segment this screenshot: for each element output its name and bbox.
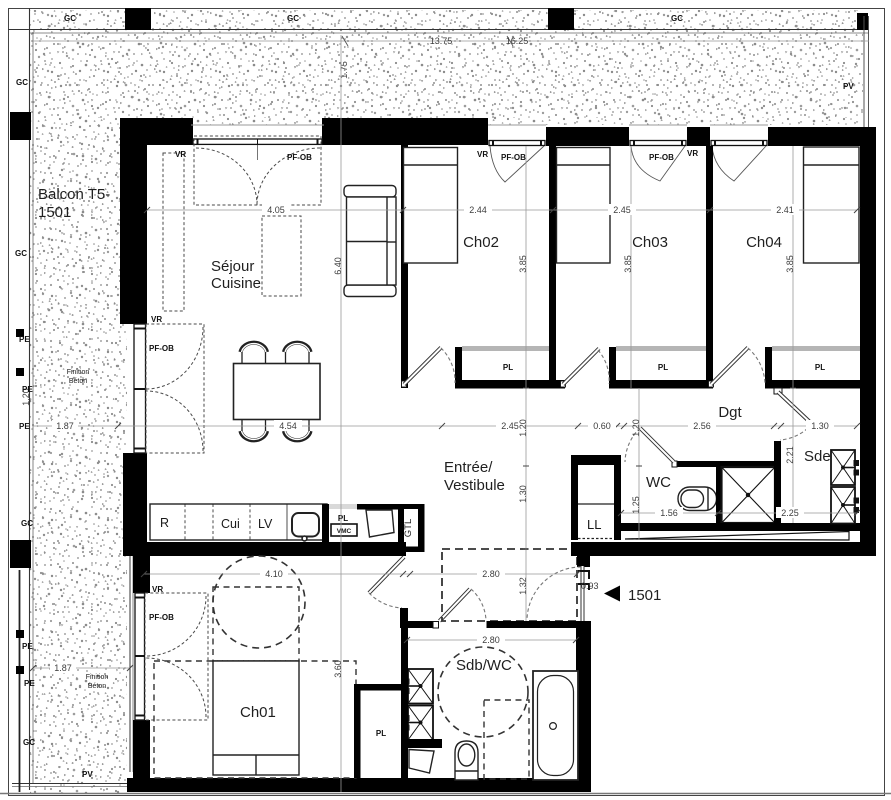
svg-text:Ch03: Ch03 xyxy=(632,234,668,251)
svg-text:Sde: Sde xyxy=(804,448,831,465)
svg-text:VR: VR xyxy=(687,149,698,158)
svg-text:GC: GC xyxy=(16,78,28,87)
svg-text:Finition: Finition xyxy=(86,674,109,681)
svg-text:Cui: Cui xyxy=(221,517,240,531)
svg-text:Vestibule: Vestibule xyxy=(444,477,505,494)
svg-text:2.41: 2.41 xyxy=(776,205,794,215)
svg-text:Entrée/: Entrée/ xyxy=(444,459,493,476)
svg-text:6.40: 6.40 xyxy=(333,257,343,275)
svg-text:Balcon T5-: Balcon T5- xyxy=(38,186,110,203)
svg-text:2.80: 2.80 xyxy=(482,569,500,579)
svg-text:1.87: 1.87 xyxy=(54,663,72,673)
svg-text:16.25: 16.25 xyxy=(506,36,529,46)
svg-text:2.56: 2.56 xyxy=(693,421,711,431)
svg-text:3.85: 3.85 xyxy=(623,255,633,273)
svg-text:3.85: 3.85 xyxy=(785,255,795,273)
svg-text:GC: GC xyxy=(64,14,76,23)
svg-text:Dgt: Dgt xyxy=(718,404,742,421)
svg-text:PV: PV xyxy=(82,770,93,779)
svg-text:VMC: VMC xyxy=(337,528,352,535)
svg-text:GC: GC xyxy=(21,519,33,528)
svg-text:PF-OB: PF-OB xyxy=(649,153,674,162)
svg-text:PF-OB: PF-OB xyxy=(149,613,174,622)
svg-text:WC: WC xyxy=(646,474,671,491)
svg-text:VR: VR xyxy=(175,150,186,159)
svg-text:2.21: 2.21 xyxy=(785,446,795,464)
svg-text:PE: PE xyxy=(19,335,30,344)
svg-text:1501: 1501 xyxy=(38,204,71,221)
svg-text:4.10: 4.10 xyxy=(265,569,283,579)
svg-text:GTL: GTL xyxy=(403,519,414,537)
svg-text:VR: VR xyxy=(152,585,163,594)
svg-text:Béton: Béton xyxy=(69,378,87,385)
svg-text:1501: 1501 xyxy=(628,587,661,604)
svg-text:PF-OB: PF-OB xyxy=(501,153,526,162)
svg-text:GC: GC xyxy=(23,738,35,747)
svg-text:2.45: 2.45 xyxy=(501,421,519,431)
svg-text:PF-OB: PF-OB xyxy=(149,344,174,353)
svg-text:1.75: 1.75 xyxy=(339,61,349,79)
svg-text:2.45: 2.45 xyxy=(613,205,631,215)
svg-text:4.54: 4.54 xyxy=(279,421,297,431)
svg-text:PV: PV xyxy=(843,82,854,91)
svg-text:1.56: 1.56 xyxy=(660,508,678,518)
svg-text:PL: PL xyxy=(338,514,348,523)
svg-text:Finition: Finition xyxy=(67,369,90,376)
svg-text:13.75: 13.75 xyxy=(430,36,453,46)
svg-text:GC: GC xyxy=(671,14,683,23)
svg-text:PL: PL xyxy=(815,363,825,372)
svg-text:PL: PL xyxy=(376,729,386,738)
svg-text:1.20: 1.20 xyxy=(518,419,528,437)
svg-text:1.30: 1.30 xyxy=(811,421,829,431)
svg-text:3.85: 3.85 xyxy=(518,255,528,273)
svg-text:PE: PE xyxy=(19,422,30,431)
svg-text:Béton: Béton xyxy=(88,683,106,690)
svg-text:1.25: 1.25 xyxy=(631,496,641,514)
svg-text:2.44: 2.44 xyxy=(469,205,487,215)
svg-text:LV: LV xyxy=(258,517,273,531)
svg-text:PE: PE xyxy=(22,642,33,651)
svg-text:Sdb/WC: Sdb/WC xyxy=(456,657,512,674)
svg-text:4.05: 4.05 xyxy=(267,205,285,215)
svg-text:LL: LL xyxy=(587,517,601,532)
svg-text:Ch01: Ch01 xyxy=(240,704,276,721)
svg-text:Séjour: Séjour xyxy=(211,258,254,275)
svg-text:PE: PE xyxy=(22,385,33,394)
svg-text:PF-OB: PF-OB xyxy=(287,153,312,162)
svg-text:PE: PE xyxy=(24,679,35,688)
svg-text:0.93: 0.93 xyxy=(581,581,599,591)
svg-text:PL: PL xyxy=(658,363,668,372)
svg-text:1.32: 1.32 xyxy=(518,577,528,595)
svg-text:1.20: 1.20 xyxy=(631,419,641,437)
svg-text:2.80: 2.80 xyxy=(482,635,500,645)
svg-text:VR: VR xyxy=(477,150,488,159)
svg-text:VR: VR xyxy=(151,315,162,324)
svg-text:Cuisine: Cuisine xyxy=(211,275,261,292)
svg-text:1.30: 1.30 xyxy=(518,485,528,503)
svg-text:GC: GC xyxy=(15,249,27,258)
svg-text:R: R xyxy=(160,516,169,530)
svg-text:2.25: 2.25 xyxy=(781,508,799,518)
svg-text:PL: PL xyxy=(503,363,513,372)
svg-text:0.60: 0.60 xyxy=(593,421,611,431)
svg-text:Ch02: Ch02 xyxy=(463,234,499,251)
svg-text:GC: GC xyxy=(287,14,299,23)
svg-text:Ch04: Ch04 xyxy=(746,234,782,251)
svg-text:3.60: 3.60 xyxy=(333,660,343,678)
svg-text:1.87: 1.87 xyxy=(56,421,74,431)
